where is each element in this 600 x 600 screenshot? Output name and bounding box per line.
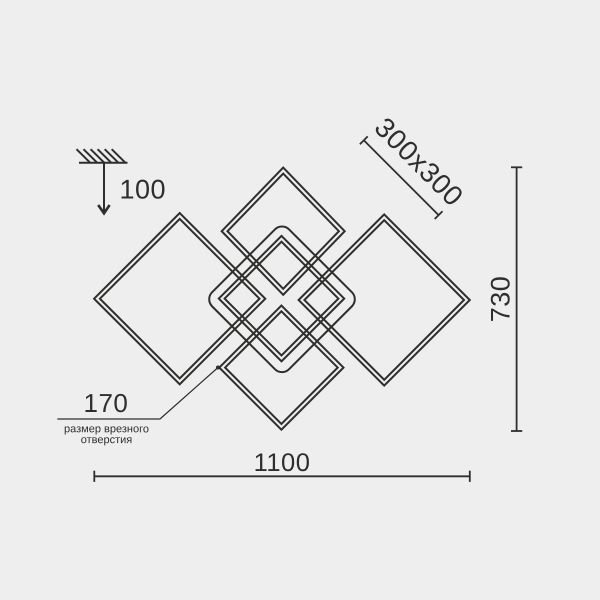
- svg-text:отверстия: отверстия: [81, 434, 133, 446]
- svg-text:730: 730: [486, 276, 516, 323]
- svg-text:170: 170: [83, 388, 128, 418]
- svg-text:1100: 1100: [254, 449, 311, 477]
- svg-text:100: 100: [119, 174, 166, 204]
